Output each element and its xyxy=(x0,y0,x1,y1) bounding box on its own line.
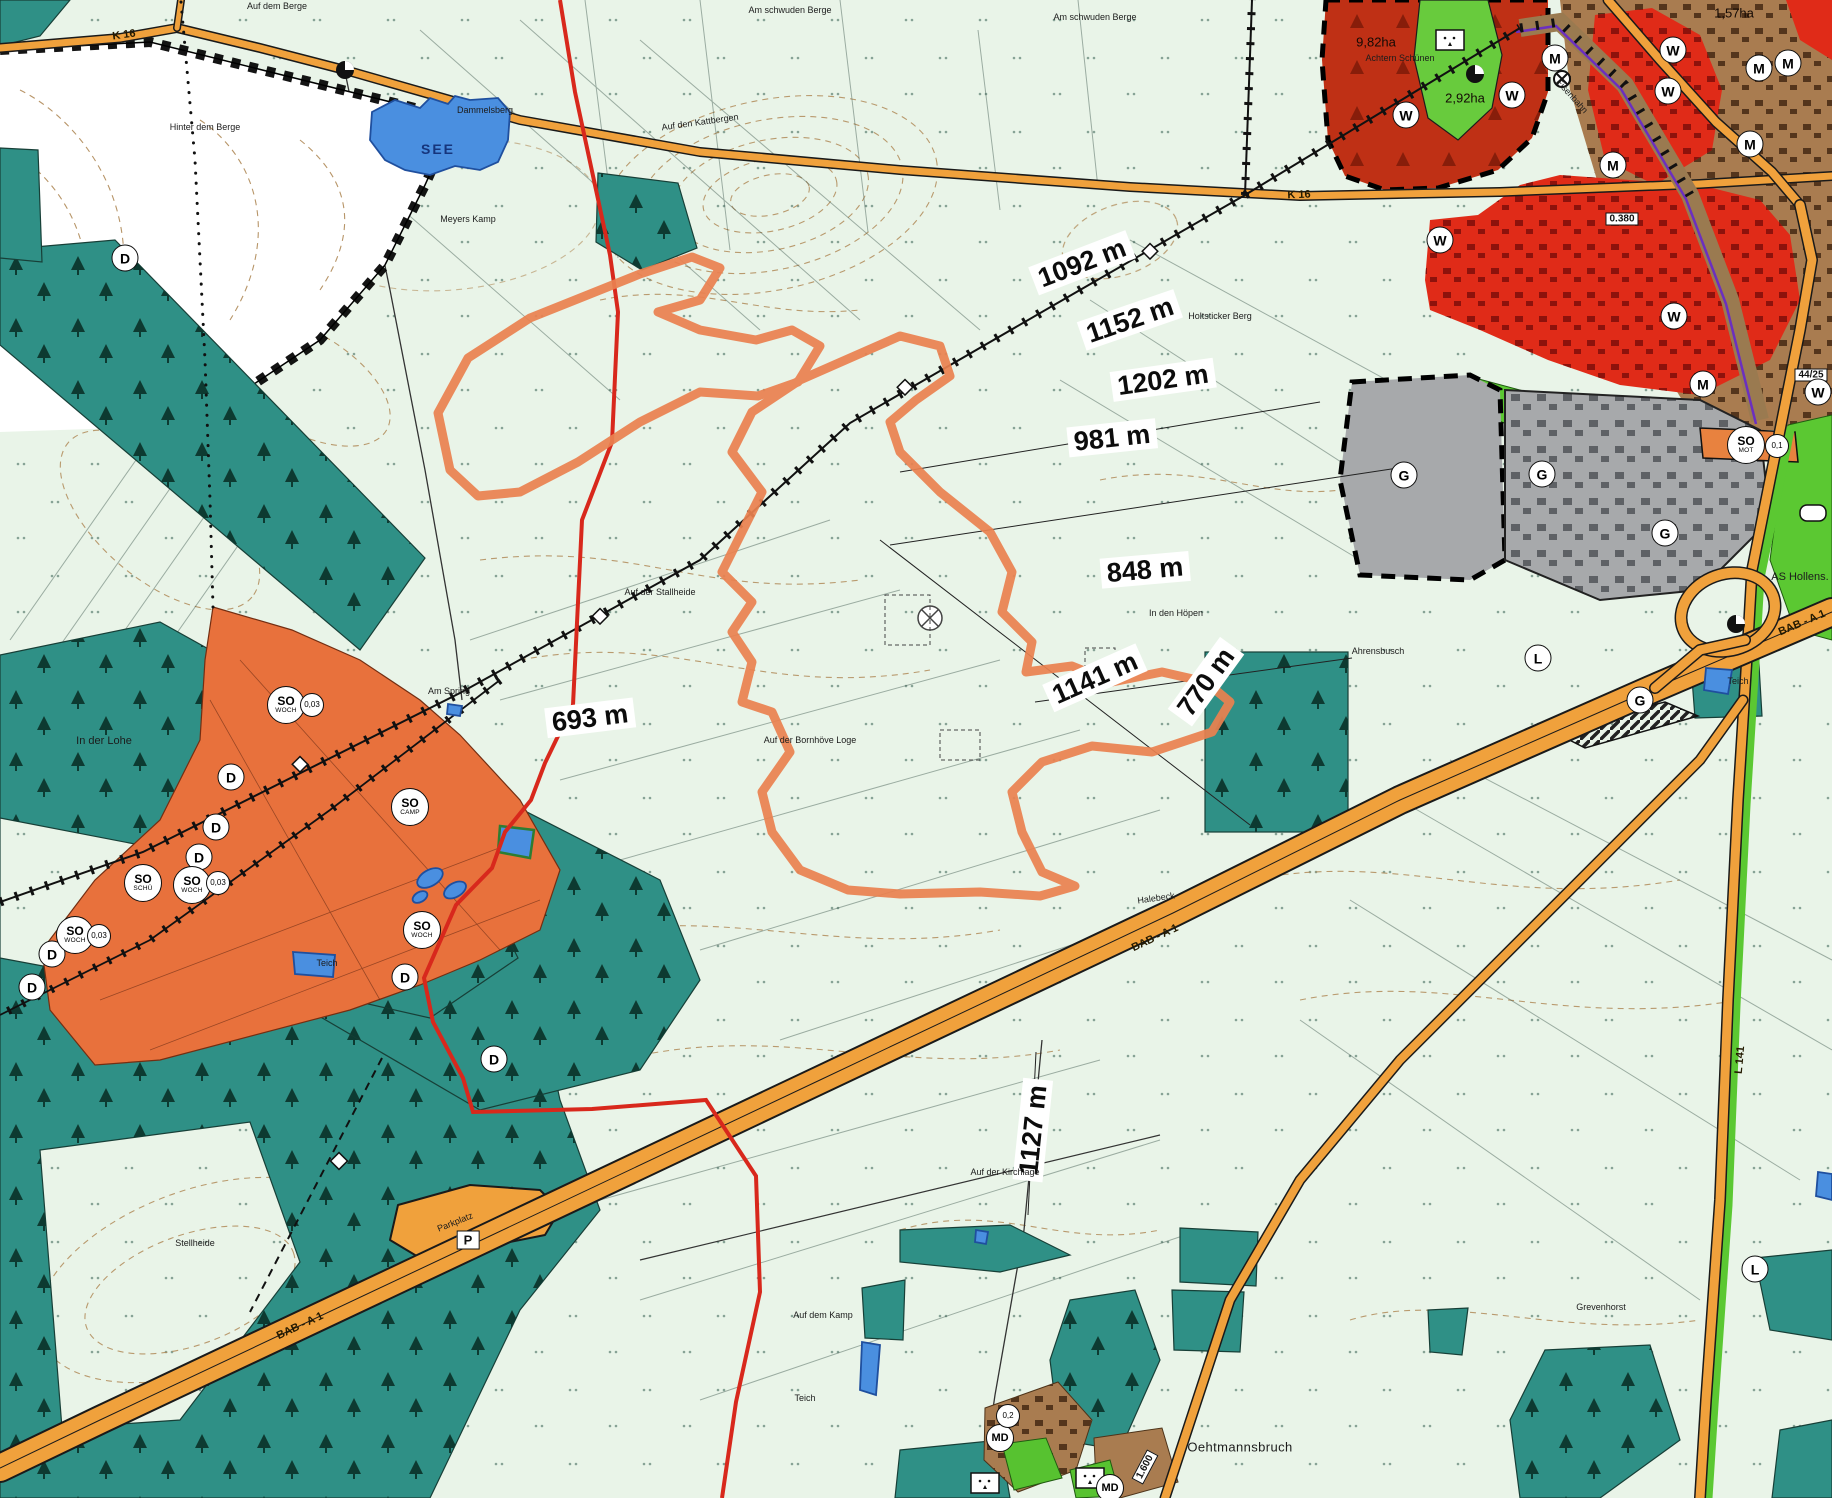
level-crossing-icon xyxy=(1554,71,1570,87)
map-canvas xyxy=(0,0,1832,1498)
monument-symbol xyxy=(1436,30,1464,50)
land-use-plan-map[interactable]: SEE 1092 m1152 m1202 m981 m848 m1141 m77… xyxy=(0,0,1832,1498)
place-marker-icon xyxy=(1727,615,1745,633)
monument-symbol xyxy=(971,1473,999,1493)
monument-symbol xyxy=(1076,1468,1104,1488)
place-marker-icon xyxy=(336,61,354,79)
place-marker-icon xyxy=(1466,65,1484,83)
lake xyxy=(370,96,510,175)
